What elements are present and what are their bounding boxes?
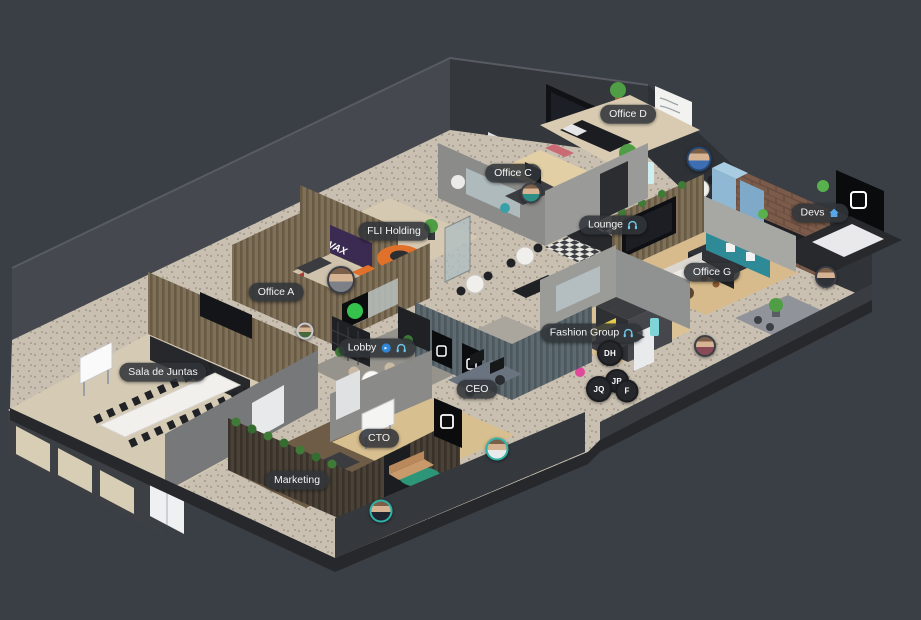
audio-icon bbox=[380, 343, 391, 354]
participant-badge-f[interactable]: F bbox=[616, 380, 639, 403]
room-label-text: Lobby bbox=[348, 343, 377, 354]
room-label-text: Devs bbox=[801, 208, 825, 219]
badge-initials: DH bbox=[604, 349, 616, 358]
home-icon bbox=[828, 208, 839, 219]
participant-badge-jq[interactable]: JQ bbox=[586, 376, 612, 402]
room-label-lounge[interactable]: Lounge bbox=[579, 216, 647, 235]
room-label-text: CTO bbox=[368, 433, 390, 444]
virtual-office-app: VAX bbox=[0, 0, 921, 620]
avatar-office-g[interactable] bbox=[694, 335, 716, 357]
room-label-cto[interactable]: CTO bbox=[359, 429, 399, 448]
room-label-office-c[interactable]: Office C bbox=[485, 164, 541, 183]
avatar-office-c[interactable] bbox=[521, 183, 542, 204]
avatar-hallway[interactable] bbox=[297, 323, 314, 340]
room-label-text: FLI Holding bbox=[367, 226, 421, 237]
room-label-text: Office A bbox=[258, 287, 295, 298]
headphones-icon bbox=[395, 343, 406, 354]
room-label-office-a[interactable]: Office A bbox=[249, 283, 304, 302]
room-label-sala-de-juntas[interactable]: Sala de Juntas bbox=[119, 363, 206, 382]
room-label-fli-holding[interactable]: FLI Holding bbox=[358, 222, 430, 241]
room-label-text: Office D bbox=[609, 109, 647, 120]
room-label-text: Lounge bbox=[588, 220, 623, 231]
badge-initials: JQ bbox=[593, 385, 604, 394]
badge-initials: F bbox=[624, 387, 629, 396]
avatar-ceo[interactable] bbox=[486, 438, 509, 461]
room-label-text: Office G bbox=[693, 267, 731, 278]
labels-overlay: Office DOffice CLoungeDevsFLI HoldingOff… bbox=[0, 0, 921, 620]
avatar-lounge[interactable] bbox=[687, 147, 712, 172]
headphones-icon bbox=[623, 328, 634, 339]
headphones-icon bbox=[627, 220, 638, 231]
room-label-office-g[interactable]: Office G bbox=[684, 263, 740, 282]
room-label-marketing[interactable]: Marketing bbox=[265, 471, 329, 490]
room-label-text: Sala de Juntas bbox=[128, 367, 197, 378]
room-label-ceo[interactable]: CEO bbox=[457, 380, 498, 399]
room-label-devs[interactable]: Devs bbox=[792, 204, 849, 223]
room-label-fashion-group[interactable]: Fashion Group bbox=[541, 324, 643, 343]
room-label-lobby[interactable]: Lobby bbox=[339, 339, 416, 358]
room-label-office-d[interactable]: Office D bbox=[600, 105, 656, 124]
room-label-text: Office C bbox=[494, 168, 532, 179]
participant-badge-dh[interactable]: DH bbox=[597, 340, 623, 366]
avatar-cto[interactable] bbox=[370, 500, 393, 523]
avatar-devs[interactable] bbox=[815, 266, 837, 288]
room-label-text: Marketing bbox=[274, 475, 320, 486]
avatar-office-a[interactable] bbox=[327, 266, 355, 294]
room-label-text: CEO bbox=[466, 384, 489, 395]
room-label-text: Fashion Group bbox=[550, 328, 619, 339]
